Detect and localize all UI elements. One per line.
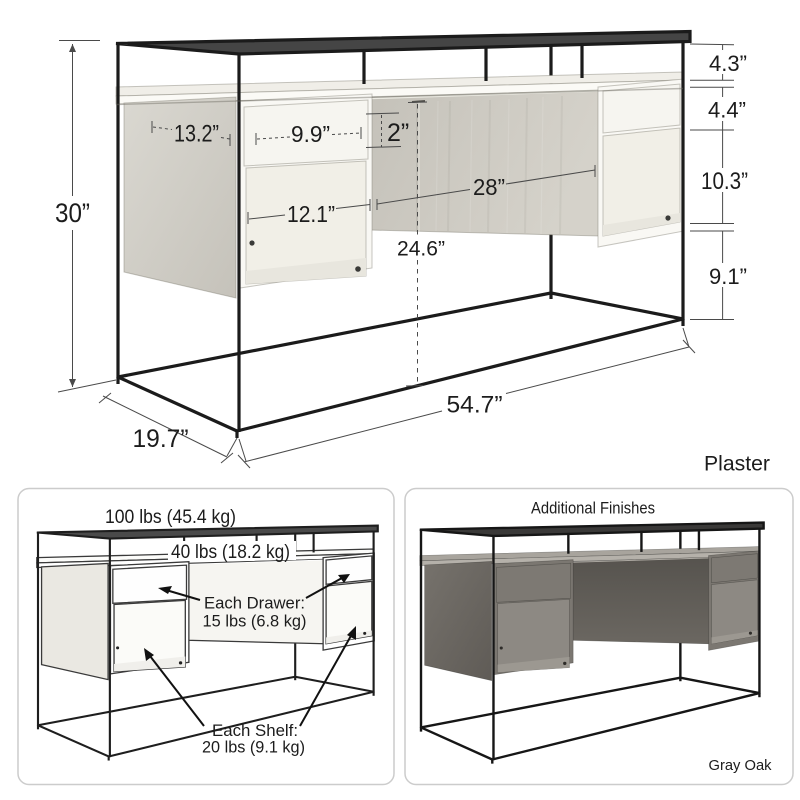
svg-text:20 lbs (9.1 kg): 20 lbs (9.1 kg) [202, 739, 305, 757]
svg-text:12.1”: 12.1” [287, 201, 335, 227]
svg-text:19.7”: 19.7” [133, 425, 189, 453]
svg-text:Each Drawer:: Each Drawer: [204, 595, 305, 613]
svg-text:9.9”: 9.9” [291, 121, 330, 147]
svg-text:4.4”: 4.4” [708, 98, 746, 123]
svg-text:15 lbs (6.8 kg): 15 lbs (6.8 kg) [203, 613, 307, 631]
svg-text:Plaster: Plaster [704, 451, 770, 475]
svg-text:13.2”: 13.2” [174, 121, 219, 148]
svg-text:Additional Finishes: Additional Finishes [531, 500, 655, 518]
svg-text:9.1”: 9.1” [709, 264, 747, 289]
svg-text:28”: 28” [473, 174, 505, 200]
svg-text:Gray Oak: Gray Oak [709, 757, 772, 774]
svg-text:24.6”: 24.6” [397, 238, 445, 261]
svg-text:2”: 2” [387, 119, 409, 147]
svg-text:30”: 30” [55, 198, 90, 228]
svg-text:100 lbs (45.4 kg): 100 lbs (45.4 kg) [105, 506, 236, 528]
svg-text:Each Shelf:: Each Shelf: [212, 722, 298, 740]
svg-text:10.3”: 10.3” [701, 168, 748, 195]
svg-text:54.7”: 54.7” [447, 391, 503, 418]
svg-text:4.3”: 4.3” [709, 51, 747, 76]
svg-text:40 lbs (18.2 kg): 40 lbs (18.2 kg) [171, 541, 290, 563]
